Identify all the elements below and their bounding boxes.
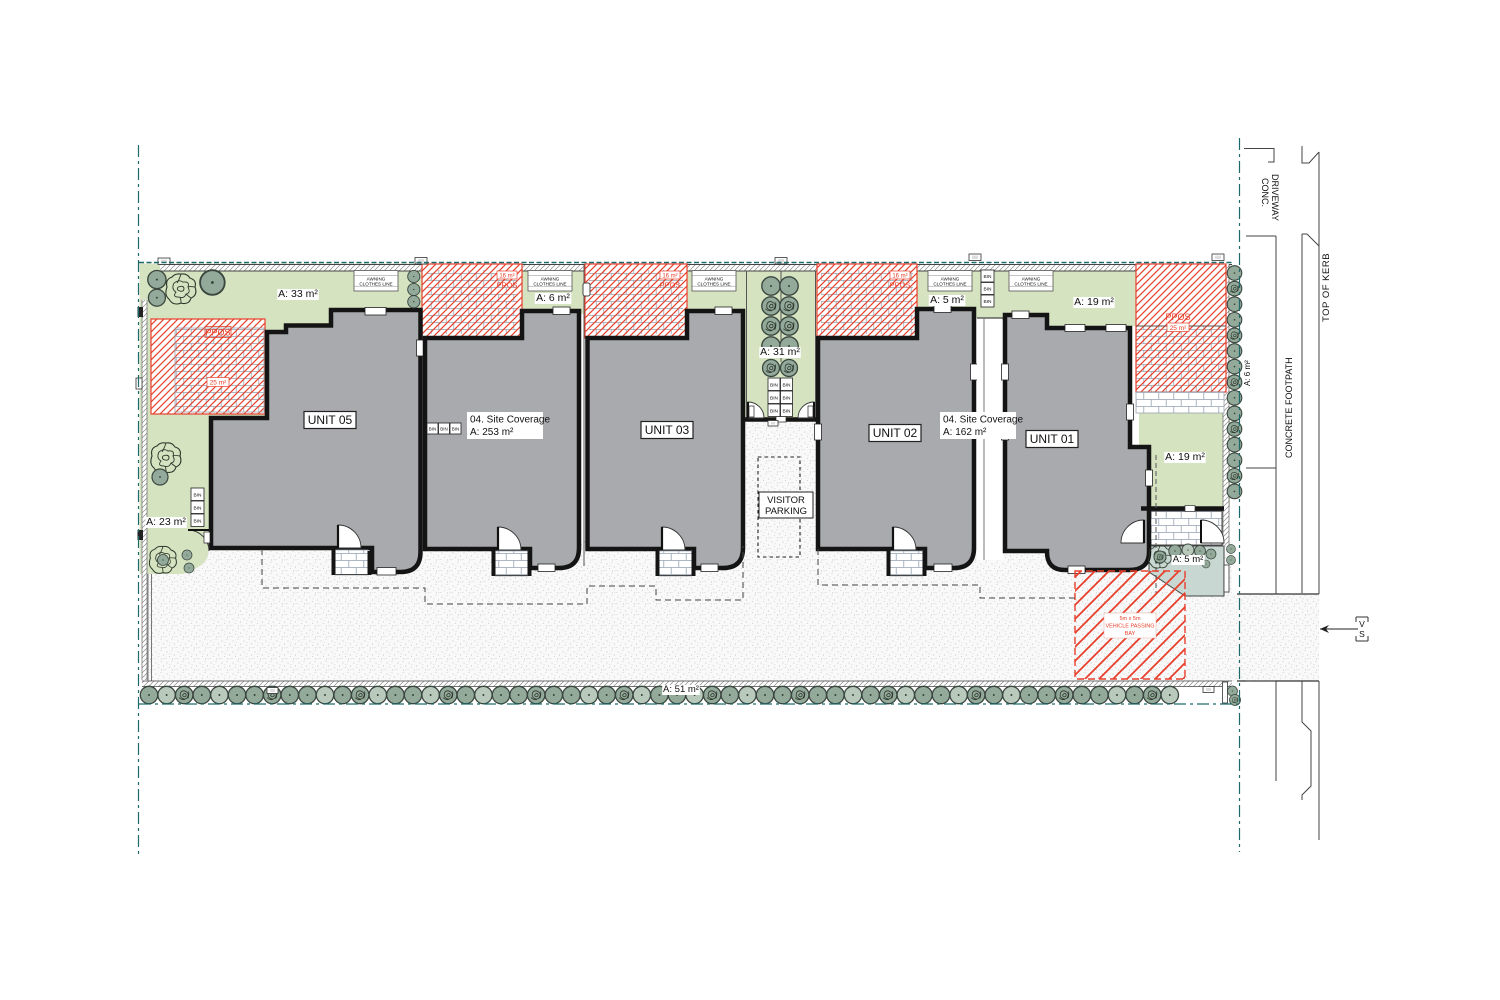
svg-text:BIN: BIN bbox=[984, 299, 993, 305]
svg-text:A: 6 m²: A: 6 m² bbox=[536, 292, 570, 304]
svg-text:16 m²: 16 m² bbox=[499, 273, 514, 279]
svg-text:CLOTHES LINE: CLOTHES LINE bbox=[359, 282, 392, 287]
svg-text:BIN: BIN bbox=[429, 427, 437, 432]
svg-text:CONCRETE FOOTPATH: CONCRETE FOOTPATH bbox=[1284, 357, 1294, 458]
svg-text:BIN: BIN bbox=[440, 427, 448, 432]
svg-text:04. Site Coverage: 04. Site Coverage bbox=[470, 415, 550, 426]
svg-text:A: 19 m²: A: 19 m² bbox=[1165, 451, 1205, 463]
svg-text:A: 23 m²: A: 23 m² bbox=[146, 516, 186, 528]
svg-text:16 m²: 16 m² bbox=[892, 273, 907, 279]
svg-text:UNIT 03: UNIT 03 bbox=[645, 423, 690, 437]
svg-text:A: 253 m²: A: 253 m² bbox=[470, 427, 514, 438]
svg-text:CLOTHES LINE: CLOTHES LINE bbox=[1014, 282, 1047, 287]
svg-text:PARKING: PARKING bbox=[765, 506, 807, 517]
svg-text:04. Site Coverage: 04. Site Coverage bbox=[943, 415, 1023, 426]
svg-text:CLOTHES LINE: CLOTHES LINE bbox=[533, 282, 566, 287]
svg-text:UNIT 05: UNIT 05 bbox=[308, 413, 353, 427]
svg-text:BIN: BIN bbox=[194, 518, 203, 524]
svg-text:S: S bbox=[1359, 629, 1365, 639]
svg-text:PPOS: PPOS bbox=[1165, 312, 1190, 322]
svg-text:BIN: BIN bbox=[984, 274, 993, 280]
svg-text:A: 33 m²: A: 33 m² bbox=[278, 288, 318, 300]
svg-text:VEHICLE PASSING: VEHICLE PASSING bbox=[1105, 624, 1154, 630]
svg-text:5m x 5m: 5m x 5m bbox=[1119, 616, 1141, 622]
svg-text:PPOS: PPOS bbox=[205, 328, 230, 338]
svg-text:25 m²: 25 m² bbox=[210, 380, 227, 387]
svg-text:PPOS: PPOS bbox=[660, 281, 681, 290]
svg-text:BIN: BIN bbox=[194, 492, 203, 498]
svg-text:A: 31 m²: A: 31 m² bbox=[760, 346, 800, 358]
svg-text:A: 5 m²: A: 5 m² bbox=[930, 294, 964, 306]
svg-text:UNIT 01: UNIT 01 bbox=[1030, 432, 1075, 446]
svg-text:CLOTHES LINE: CLOTHES LINE bbox=[697, 282, 730, 287]
svg-text:UNIT 02: UNIT 02 bbox=[873, 426, 918, 440]
svg-text:V: V bbox=[1359, 619, 1365, 629]
svg-text:A: 162 m²: A: 162 m² bbox=[943, 427, 987, 438]
svg-text:BIN: BIN bbox=[770, 408, 779, 414]
svg-text:BIN: BIN bbox=[194, 505, 203, 511]
svg-text:BIN: BIN bbox=[783, 408, 792, 414]
svg-text:BIN: BIN bbox=[770, 395, 779, 401]
svg-text:TOP OF KERB: TOP OF KERB bbox=[1321, 253, 1332, 322]
svg-text:PPOS: PPOS bbox=[497, 281, 518, 290]
svg-text:BIN: BIN bbox=[783, 395, 792, 401]
svg-text:BIN: BIN bbox=[452, 427, 460, 432]
svg-text:CLOTHES LINE: CLOTHES LINE bbox=[933, 282, 966, 287]
svg-text:BAY: BAY bbox=[1125, 631, 1136, 637]
svg-text:BIN: BIN bbox=[783, 382, 792, 388]
svg-text:A: 19 m²: A: 19 m² bbox=[1074, 296, 1114, 308]
svg-text:25 m²: 25 m² bbox=[1170, 325, 1187, 332]
svg-text:A: 6 m²: A: 6 m² bbox=[1243, 360, 1252, 386]
svg-text:DRIVEWAY: DRIVEWAY bbox=[1270, 174, 1280, 221]
svg-text:PPOS: PPOS bbox=[890, 281, 911, 290]
svg-text:16 m²: 16 m² bbox=[662, 273, 677, 279]
svg-text:CONC.: CONC. bbox=[1260, 178, 1270, 207]
svg-text:A: 5 m²: A: 5 m² bbox=[1173, 554, 1204, 565]
svg-text:A: 51 m²: A: 51 m² bbox=[663, 684, 699, 695]
svg-text:VISITOR: VISITOR bbox=[767, 495, 805, 506]
svg-text:BIN: BIN bbox=[770, 382, 779, 388]
svg-text:BIN: BIN bbox=[984, 287, 993, 293]
